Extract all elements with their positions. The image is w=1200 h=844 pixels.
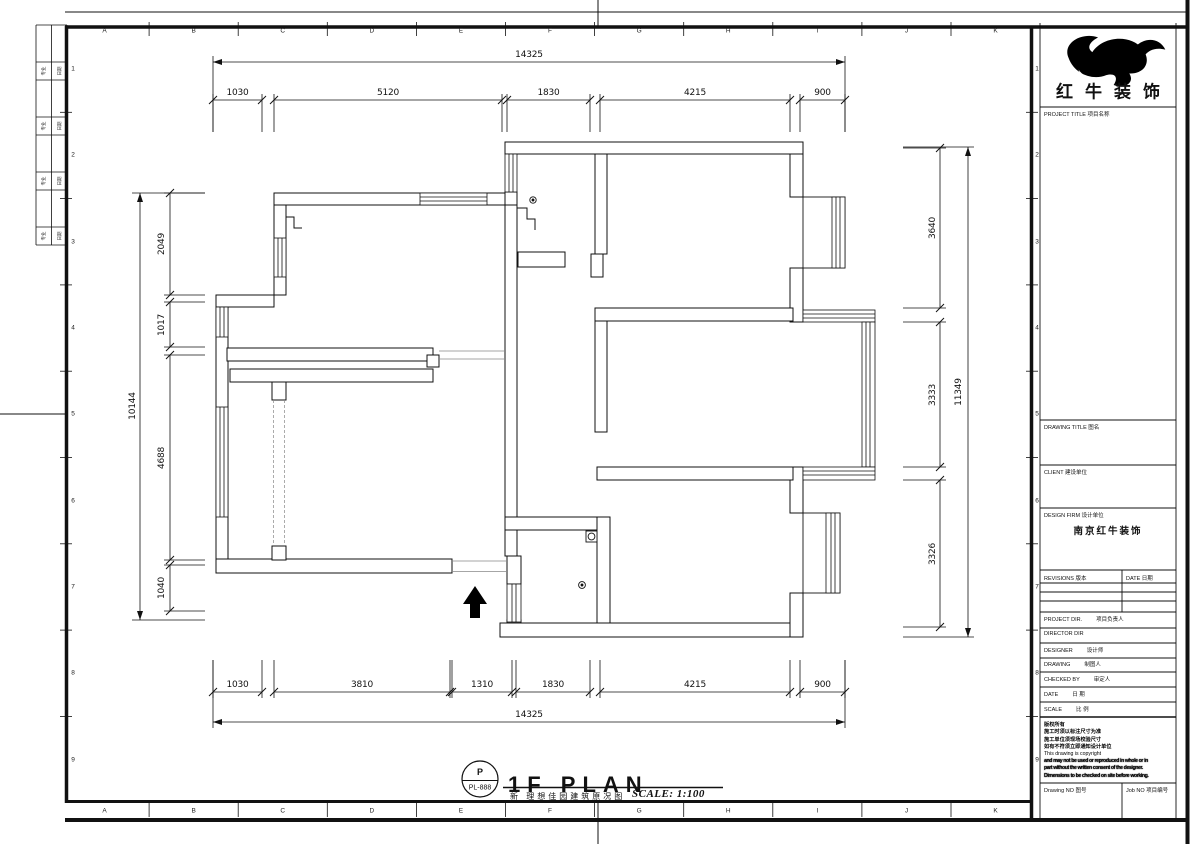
revisions-label: REVISIONS 版本 — [1044, 574, 1086, 582]
job-no-label: Job NO 项目编号 — [1126, 786, 1168, 794]
grid-number-right: 8 — [1035, 670, 1039, 677]
signoff-left-label: 专业 — [41, 122, 47, 131]
grid-number-left: 7 — [71, 583, 75, 590]
grid-number-left: 2 — [71, 152, 75, 159]
logo-text: 红牛装饰 — [1044, 78, 1172, 103]
row-label-cn: 设计师 — [1087, 648, 1104, 654]
grid-number-left: 6 — [71, 497, 75, 504]
grid-letter-top: G — [637, 28, 642, 35]
grid-number-right: 7 — [1035, 583, 1039, 590]
dim-left: 1017 — [157, 313, 167, 335]
row-label-cn: 日 期 — [1072, 692, 1085, 698]
copyright-line: 施工时须以标注尺寸为准 — [1044, 728, 1101, 735]
windows — [216, 154, 875, 622]
copyright-line: 版权所有 — [1044, 721, 1065, 728]
grid-letter-top: C — [280, 28, 285, 35]
grid-letter-bottom: G — [637, 808, 642, 815]
titleblock-row: DATE日 期 — [1044, 690, 1085, 698]
stamp-number: PL-888 — [469, 785, 492, 792]
plan-scale-note: SCALE: 1:100 — [632, 788, 705, 800]
project-title-label: PROJECT TITLE 项目名称 — [1044, 110, 1110, 118]
dim-arrow — [213, 719, 222, 725]
grid-letter-bottom: K — [993, 808, 997, 815]
step-corner-topleft — [286, 205, 302, 228]
grid-number-left: 9 — [71, 756, 75, 763]
dim-top: 1030 — [226, 88, 248, 98]
dim-right: 3640 — [928, 217, 938, 239]
dim-right-overall: 11349 — [954, 378, 964, 406]
titleblock-row: DESIGNER设计师 — [1044, 646, 1103, 654]
dim-bottom: 4215 — [684, 680, 706, 690]
grid-number-right: 4 — [1035, 325, 1039, 332]
copyright-line: and may not be used or reproduced in who… — [1044, 758, 1148, 764]
dim-bottom: 1310 — [471, 680, 493, 690]
dim-top: 1830 — [537, 88, 559, 98]
dim-bottom: 900 — [814, 680, 831, 690]
grid-letter-top: A — [102, 28, 106, 35]
row-label-en: CHECKED BY — [1044, 677, 1080, 683]
grid-letter-bottom: D — [369, 808, 374, 815]
grid-number-right: 2 — [1035, 152, 1039, 159]
copyright-line: part without the written consent of the … — [1044, 765, 1143, 771]
client-label: CLIENT 建设单位 — [1044, 468, 1087, 476]
dim-bottom: 3810 — [351, 680, 373, 690]
drawing-no-label: Drawing NO 图号 — [1044, 786, 1086, 794]
titleblock-row: CHECKED BY审定人 — [1044, 675, 1110, 683]
grid-letter-bottom: B — [191, 808, 195, 815]
dim-right: 3326 — [928, 542, 938, 564]
row-label-cn: 项目负责人 — [1096, 617, 1124, 623]
dim-arrow — [213, 59, 222, 65]
dim-arrow — [836, 719, 845, 725]
grid-number-right: 5 — [1035, 411, 1039, 418]
dim-top: 4215 — [684, 88, 706, 98]
dim-arrow — [836, 59, 845, 65]
dim-top-overall: 14325 — [515, 50, 543, 60]
cad-linework — [0, 0, 1200, 844]
grid-number-left: 1 — [71, 66, 75, 73]
grid-letter-bottom: E — [459, 808, 463, 815]
grid-letter-bottom: A — [102, 808, 106, 815]
stamp-letter: P — [477, 767, 483, 777]
copyright-line: This drawing is copyright — [1044, 751, 1101, 757]
grid-number-right: 1 — [1035, 66, 1039, 73]
titleblock-row: DRAWING制图人 — [1044, 660, 1101, 668]
titleblock-row: DIRECTOR DIR — [1044, 631, 1098, 637]
grid-letter-bottom: H — [726, 808, 731, 815]
row-label-en: DESIGNER — [1044, 648, 1073, 654]
signoff-left-label: 专业 — [41, 177, 47, 186]
entry-arrow-icon — [463, 586, 487, 618]
grid-letter-bottom: I — [816, 808, 818, 815]
floor-plan-walls — [216, 142, 803, 637]
revision-date-label: DATE 日期 — [1126, 574, 1153, 582]
row-label-en: DRAWING — [1044, 662, 1070, 668]
grid-number-left: 5 — [71, 411, 75, 418]
grid-letter-top: K — [993, 28, 997, 35]
dim-left-overall: 10144 — [128, 392, 138, 420]
drawing-title-label: DRAWING TITLE 图名 — [1044, 423, 1099, 431]
grid-letter-top: J — [905, 28, 908, 35]
dimension-lines — [60, 22, 1038, 817]
design-firm-value: 南京红牛装饰 — [1073, 523, 1142, 537]
titleblock-grid — [1040, 23, 1176, 819]
dim-right: 3333 — [928, 383, 938, 405]
grid-letter-top: D — [369, 28, 374, 35]
dim-top: 5120 — [377, 88, 399, 98]
dim-top: 900 — [814, 88, 831, 98]
row-label-en: DATE — [1044, 692, 1058, 698]
signoff-strip — [36, 25, 67, 245]
dim-bottom-overall: 14325 — [515, 710, 543, 720]
signoff-left-label: 专业 — [41, 67, 47, 76]
copyright-line: Dimensions to be checked on site before … — [1044, 773, 1148, 779]
signoff-right-label: 日期 — [57, 177, 63, 186]
plan-subtitle: 新 理想佳园建筑原况图 — [510, 791, 625, 802]
signoff-left-label: 专业 — [41, 232, 47, 241]
grid-letter-bottom: J — [905, 808, 908, 815]
grid-letter-top: H — [726, 28, 731, 35]
row-label-en: SCALE — [1044, 707, 1062, 713]
grid-letter-bottom: C — [280, 808, 285, 815]
grid-number-left: 8 — [71, 670, 75, 677]
grid-letter-bottom: F — [548, 808, 552, 815]
copyright-line: 如有不符须立即通知设计单位 — [1044, 743, 1111, 750]
grid-number-right: 6 — [1035, 497, 1039, 504]
dim-left: 1040 — [157, 577, 167, 599]
row-label-en: DIRECTOR DIR — [1044, 631, 1084, 637]
grid-number-left: 4 — [71, 325, 75, 332]
step-corner-hall — [517, 208, 535, 230]
grid-letter-top: F — [548, 28, 552, 35]
dim-bottom: 1830 — [542, 680, 564, 690]
titleblock-row: PROJECT DIR.项目负责人 — [1044, 615, 1124, 623]
row-label-cn: 审定人 — [1094, 677, 1111, 683]
dim-arrow — [965, 628, 971, 637]
dim-arrow — [137, 611, 143, 620]
grid-number-right: 3 — [1035, 238, 1039, 245]
dim-left: 4688 — [157, 446, 167, 468]
grid-number-left: 3 — [71, 238, 75, 245]
row-label-en: PROJECT DIR. — [1044, 617, 1082, 623]
row-label-cn: 制图人 — [1084, 662, 1101, 668]
dim-bottom: 1030 — [226, 680, 248, 690]
grid-letter-top: E — [459, 28, 463, 35]
grid-letter-top: I — [816, 28, 818, 35]
titleblock-row: SCALE比 例 — [1044, 705, 1089, 713]
signoff-right-label: 日期 — [57, 122, 63, 131]
grid-letter-top: B — [191, 28, 195, 35]
light-partitions — [274, 351, 508, 572]
dim-arrow — [965, 147, 971, 156]
dim-arrow — [137, 193, 143, 202]
copyright-line: 施工单位须现场校验尺寸 — [1044, 736, 1101, 743]
design-firm-label: DESIGN FIRM 设计单位 — [1044, 511, 1104, 519]
signoff-right-label: 日期 — [57, 67, 63, 76]
grid-number-right: 9 — [1035, 756, 1039, 763]
dim-left: 2049 — [157, 233, 167, 255]
signoff-right-label: 日期 — [57, 232, 63, 241]
row-label-cn: 比 例 — [1076, 707, 1089, 713]
drawing-sheet: 红牛装饰 PROJECT TITLE 项目名称 DRAWING TITLE 图名… — [0, 0, 1200, 844]
